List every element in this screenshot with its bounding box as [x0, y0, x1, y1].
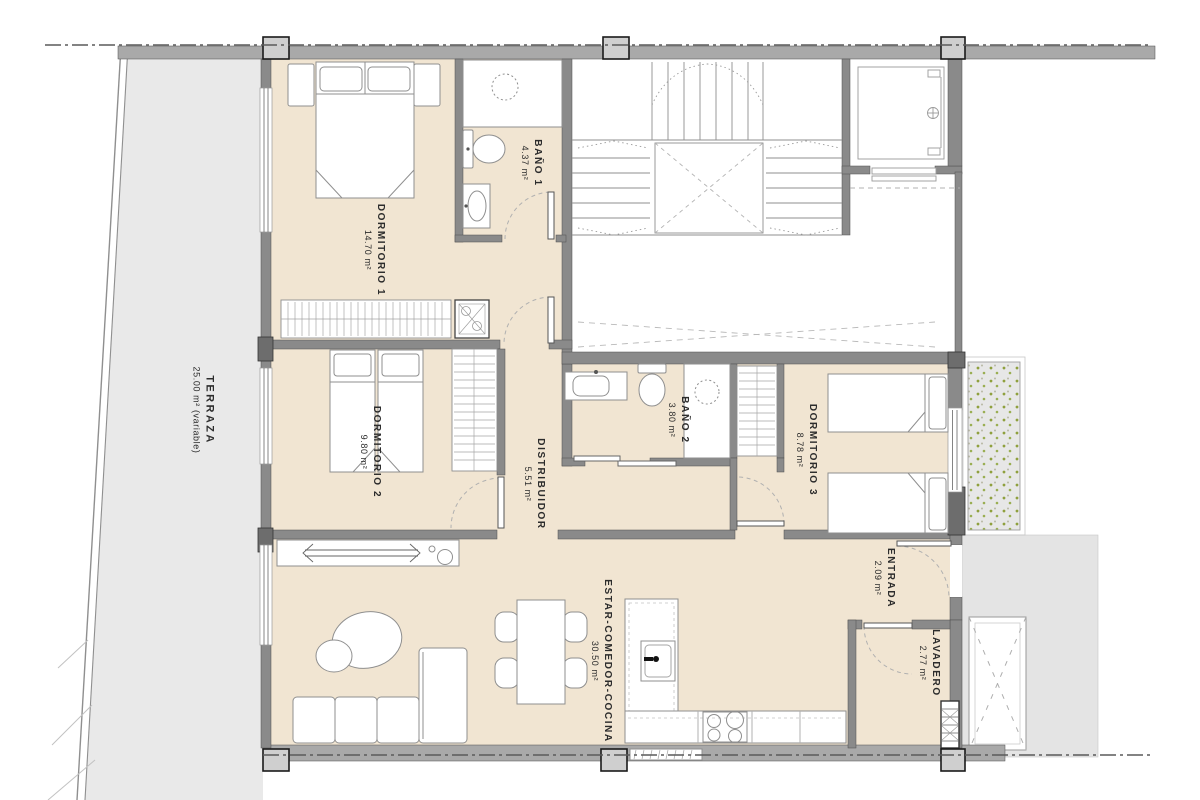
room-label-bano-1: BAÑO 1 4.37 m² [519, 139, 543, 186]
room-label-entrada: ENTRADA 2.09 m² [872, 548, 896, 608]
floor-plan-page: TERRAZA 25.00 m² (variable) DORMITORIO 1… [0, 0, 1200, 800]
room-name: DORMITORIO 2 [369, 406, 382, 498]
sliding-door [618, 461, 676, 466]
room-area: 2.77 m² [917, 629, 928, 696]
room-area: 2.09 m² [872, 548, 883, 608]
room-area: 4.37 m² [519, 139, 530, 186]
room-area: 8.78 m² [794, 404, 805, 496]
room-area: 25.00 m² (variable) [191, 367, 202, 454]
room-area: 30.50 m² [589, 579, 600, 742]
window-dormitorio-3 [948, 408, 962, 492]
stairs [572, 62, 935, 347]
room-label-lavadero: LAVADERO 2.77 m² [917, 629, 941, 696]
room-label-dormitorio-3: DORMITORIO 3 8.78 m² [794, 404, 818, 496]
room-label-terraza: TERRAZA 25.00 m² (variable) [191, 367, 216, 454]
chair [495, 612, 519, 642]
wardrobe-dorm2 [452, 349, 497, 471]
room-label-bano-2: BAÑO 2 3.80 m² [666, 396, 690, 443]
room-area: 3.80 m² [666, 396, 677, 443]
room-area: 5.51 m² [522, 438, 533, 529]
window-dormitorio-2 [260, 368, 272, 464]
toilet-2-tank [638, 364, 666, 373]
toilet-1-bowl [473, 135, 505, 163]
room-name: ESTAR-COMEDOR-COCINA [600, 579, 613, 742]
room-label-estar-comedor-cocina: ESTAR-COMEDOR-COCINA 30.50 m² [589, 579, 613, 742]
shower-2 [684, 364, 730, 458]
room-name: DORMITORIO 3 [805, 404, 818, 496]
room-label-distribuidor: DISTRIBUIDOR 5.51 m² [522, 438, 546, 529]
planter [963, 357, 1025, 535]
window-living [260, 545, 272, 645]
room-name: BAÑO 1 [530, 139, 543, 186]
sliding-door [574, 456, 620, 461]
room-name: LAVADERO [928, 629, 941, 696]
toilet-2-bowl [639, 374, 665, 406]
sideboard [277, 540, 459, 566]
chair [495, 658, 519, 688]
chair [563, 612, 587, 642]
installation-shaft [455, 300, 489, 338]
room-area: 14.70 m² [362, 204, 373, 296]
room-name: BAÑO 2 [677, 396, 690, 443]
heater-unit [941, 701, 959, 748]
kitchen-counter [625, 711, 846, 743]
room-name: ENTRADA [883, 548, 896, 608]
room-label-dormitorio-1: DORMITORIO 1 14.70 m² [362, 204, 386, 296]
room-label-dormitorio-2: DORMITORIO 2 9.80 m² [358, 406, 382, 498]
room-name: TERRAZA [202, 367, 216, 454]
room-name: DISTRIBUIDOR [533, 438, 546, 529]
exterior-court [962, 535, 1098, 757]
room-area: 9.80 m² [358, 406, 369, 498]
chair [563, 658, 587, 688]
terrace-area [48, 46, 263, 800]
window-dormitorio-1 [260, 88, 272, 232]
shower-1 [463, 60, 562, 127]
room-name: DORMITORIO 1 [373, 204, 386, 296]
